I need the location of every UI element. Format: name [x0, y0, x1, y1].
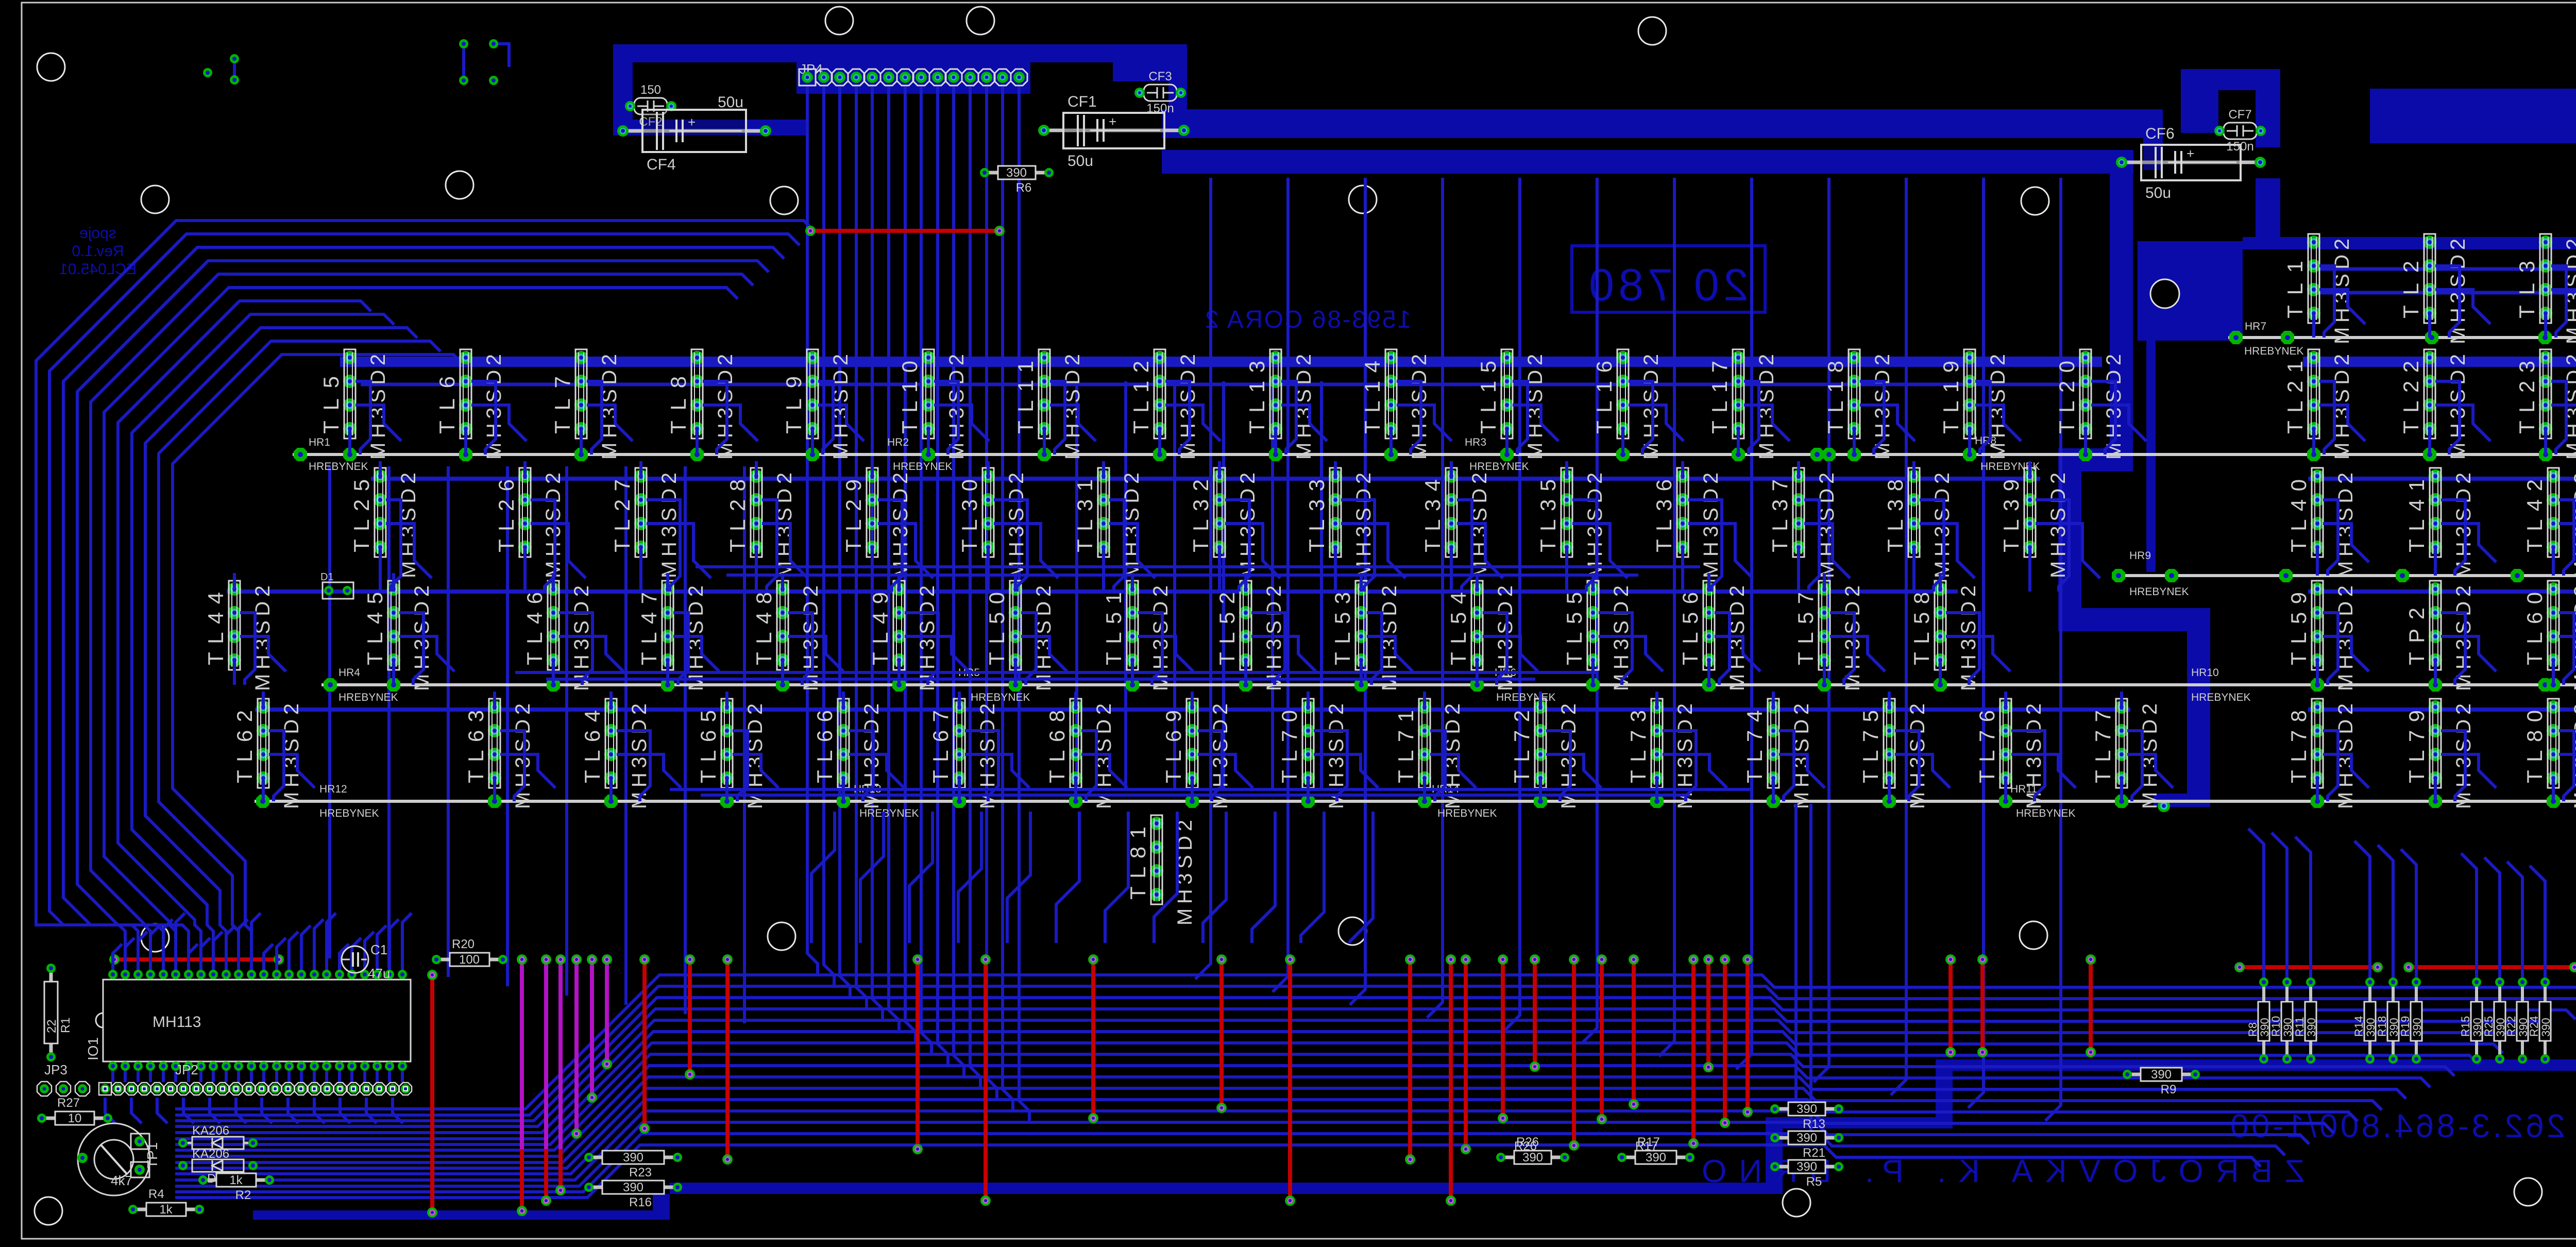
svg-text:1k: 1k — [159, 1203, 173, 1217]
svg-text:+: + — [2187, 146, 2194, 161]
svg-text:TP2: TP2 — [2404, 608, 2429, 665]
svg-text:HR2: HR2 — [887, 436, 909, 448]
svg-text:HREBYNEK: HREBYNEK — [2129, 586, 2189, 598]
svg-text:R26: R26 — [1514, 1139, 1537, 1153]
svg-text:47u: 47u — [368, 966, 390, 981]
svg-text:TL9: TL9 — [782, 376, 806, 434]
svg-text:390: 390 — [2411, 1018, 2424, 1037]
svg-text:Rev.1.0: Rev.1.0 — [72, 243, 124, 260]
svg-text:TL3: TL3 — [2515, 261, 2539, 318]
svg-text:JP2: JP2 — [175, 1062, 198, 1077]
svg-text:50u: 50u — [2145, 184, 2171, 201]
svg-text:+: + — [688, 114, 696, 130]
svg-text:390: 390 — [2539, 1018, 2552, 1037]
svg-text:HR12: HR12 — [319, 783, 347, 795]
svg-text:HREBYNEK: HREBYNEK — [338, 692, 398, 703]
svg-text:HREBYNEK: HREBYNEK — [971, 692, 1030, 703]
svg-text:390: 390 — [623, 1151, 643, 1165]
svg-text:150n: 150n — [1146, 102, 1174, 115]
svg-text:R17: R17 — [1635, 1139, 1658, 1153]
svg-text:C1: C1 — [370, 942, 387, 957]
svg-text:R18: R18 — [2376, 1016, 2388, 1037]
svg-text:MH113: MH113 — [152, 1014, 201, 1031]
svg-text:150: 150 — [640, 83, 661, 97]
svg-text:R19: R19 — [2399, 1016, 2412, 1037]
svg-text:R9: R9 — [2161, 1083, 2177, 1097]
svg-text:spoje: spoje — [79, 225, 116, 242]
svg-text:TL8: TL8 — [666, 376, 690, 434]
svg-text:TL2: TL2 — [2399, 261, 2423, 318]
svg-text:HREBYNEK: HREBYNEK — [309, 461, 368, 473]
svg-text:20 780: 20 780 — [1589, 259, 1749, 310]
svg-text:22: 22 — [45, 1019, 59, 1033]
svg-text:R16: R16 — [629, 1195, 652, 1209]
svg-text:R6: R6 — [1016, 181, 1032, 195]
svg-text:JP3: JP3 — [44, 1062, 67, 1077]
svg-text:R22: R22 — [2505, 1016, 2518, 1037]
svg-text:HR9: HR9 — [2129, 550, 2151, 562]
svg-text:CF3: CF3 — [1148, 70, 1172, 83]
svg-text:R25: R25 — [2482, 1016, 2495, 1037]
svg-text:R2: R2 — [235, 1188, 251, 1202]
svg-text:R23: R23 — [629, 1166, 652, 1179]
svg-text:R14: R14 — [2352, 1016, 2365, 1037]
svg-text:390: 390 — [2151, 1068, 2172, 1082]
svg-text:HR3: HR3 — [1465, 436, 1486, 448]
svg-text:TP1: TP1 — [144, 1142, 160, 1169]
svg-text:IO1: IO1 — [85, 1037, 101, 1060]
svg-text:HR7: HR7 — [2245, 321, 2266, 332]
svg-text:R24: R24 — [2528, 1016, 2540, 1037]
svg-text:HR10: HR10 — [2191, 667, 2219, 679]
svg-text:TL5: TL5 — [319, 376, 343, 434]
svg-text:1593-86 CORA 2: 1593-86 CORA 2 — [1205, 306, 1411, 333]
svg-text:100: 100 — [459, 953, 480, 967]
svg-text:R21: R21 — [1803, 1146, 1825, 1160]
svg-text:CF6: CF6 — [2145, 125, 2175, 142]
svg-text:HR1: HR1 — [309, 436, 330, 448]
svg-text:HREBYNEK: HREBYNEK — [2244, 345, 2304, 357]
svg-text:HREBYNEK: HREBYNEK — [2191, 692, 2251, 703]
svg-text:R27: R27 — [57, 1096, 80, 1110]
svg-text:4k7: 4k7 — [111, 1173, 132, 1188]
svg-text:150n: 150n — [2226, 140, 2253, 154]
svg-text:R10: R10 — [2269, 1016, 2282, 1037]
svg-text:R11: R11 — [2293, 1017, 2306, 1037]
svg-text:390: 390 — [623, 1181, 643, 1194]
svg-text:R20: R20 — [452, 937, 474, 951]
svg-text:390: 390 — [1006, 166, 1027, 180]
svg-text:HR4: HR4 — [338, 667, 360, 679]
svg-text:R8: R8 — [2246, 1022, 2259, 1037]
svg-text:R5: R5 — [1806, 1175, 1822, 1189]
svg-text:50u: 50u — [1067, 153, 1093, 170]
svg-text:50u: 50u — [718, 94, 743, 111]
svg-text:CF1: CF1 — [1067, 93, 1097, 110]
svg-text:390: 390 — [1797, 1131, 1817, 1145]
svg-text:HREBYNEK: HREBYNEK — [893, 461, 953, 473]
svg-text:D1: D1 — [320, 571, 334, 583]
svg-text:390: 390 — [1797, 1160, 1817, 1174]
svg-text:TL6: TL6 — [435, 376, 459, 434]
svg-text:TL7: TL7 — [550, 376, 574, 434]
svg-text:HREBYNEK: HREBYNEK — [319, 807, 379, 819]
svg-text:10: 10 — [68, 1111, 82, 1125]
svg-text:ECL045.01: ECL045.01 — [59, 261, 137, 278]
svg-text:CF7: CF7 — [2228, 108, 2251, 122]
svg-text:390: 390 — [2281, 1018, 2294, 1037]
svg-text:390: 390 — [1797, 1102, 1817, 1116]
svg-text:CF4: CF4 — [647, 156, 676, 173]
svg-text:TL1: TL1 — [2283, 261, 2307, 318]
svg-text:R15: R15 — [2459, 1016, 2472, 1037]
svg-text:R1: R1 — [59, 1017, 73, 1033]
svg-text:R4: R4 — [148, 1187, 164, 1201]
svg-text:R13: R13 — [1803, 1117, 1825, 1131]
svg-text:+: + — [1109, 114, 1116, 129]
svg-text:1k: 1k — [229, 1173, 243, 1187]
svg-text:390: 390 — [2305, 1018, 2318, 1037]
svg-text:HREBYNEK: HREBYNEK — [1469, 461, 1529, 473]
svg-text:KA206: KA206 — [192, 1124, 229, 1138]
